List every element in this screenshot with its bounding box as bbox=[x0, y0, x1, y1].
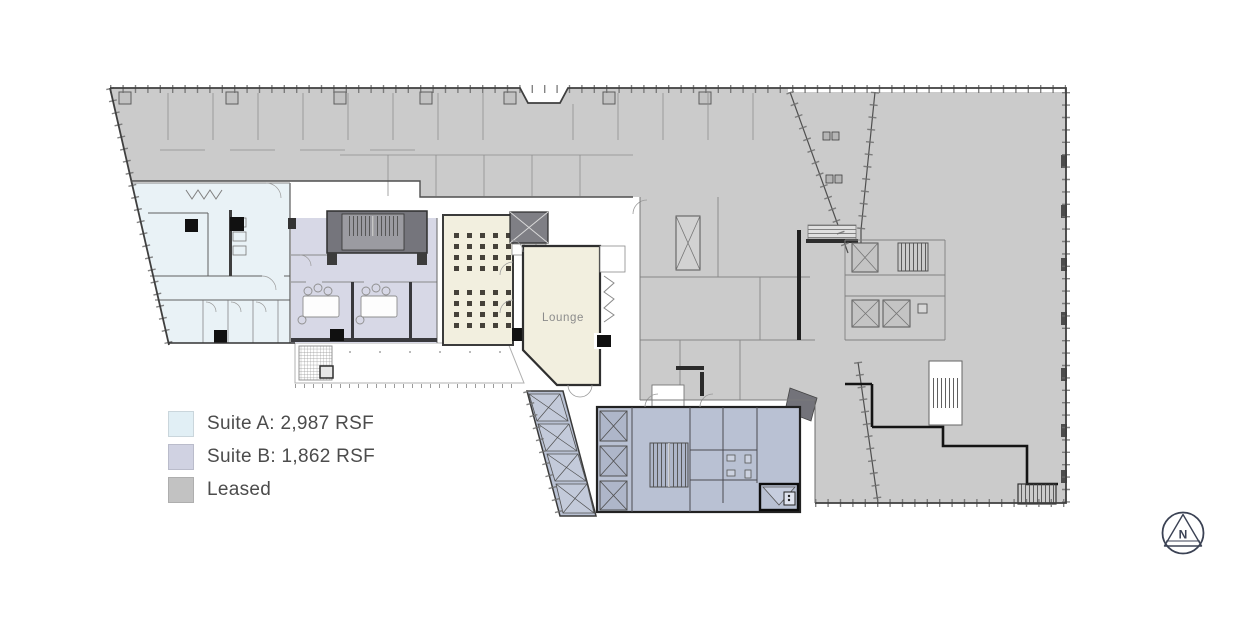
core-zone bbox=[527, 385, 817, 516]
legend: Suite A: 2,987 RSF Suite B: 1,862 RSF Le… bbox=[168, 411, 375, 503]
north-label: N bbox=[1179, 528, 1188, 542]
accordion-glass-wall bbox=[604, 276, 614, 322]
suite-b-zone bbox=[288, 211, 437, 343]
legend-item-leased: Leased bbox=[168, 477, 375, 503]
floor-plan-page: Lounge bbox=[0, 0, 1260, 620]
core-stair bbox=[650, 443, 688, 487]
legend-item-suite-b: Suite B: 1,862 RSF bbox=[168, 444, 375, 470]
core-elevators bbox=[600, 411, 627, 510]
lounge-label: Lounge bbox=[542, 312, 584, 324]
legend-label-suite-b: Suite B: 1,862 RSF bbox=[207, 446, 375, 468]
legend-label-leased: Leased bbox=[207, 479, 271, 501]
north-indicator: N bbox=[1163, 513, 1204, 554]
suite-a-zone bbox=[131, 183, 290, 343]
legend-item-suite-a: Suite A: 2,987 RSF bbox=[168, 411, 375, 437]
legend-swatch-leased bbox=[168, 477, 194, 503]
legend-label-suite-a: Suite A: 2,987 RSF bbox=[207, 413, 374, 435]
column-suite-b bbox=[330, 329, 344, 341]
core-kitchen bbox=[760, 484, 798, 510]
legend-swatch-suite-b bbox=[168, 444, 194, 470]
legend-swatch-suite-a bbox=[168, 411, 194, 437]
terrace bbox=[295, 343, 524, 383]
column-lounge bbox=[597, 335, 611, 347]
lounge-zone: Lounge bbox=[511, 240, 625, 397]
floor-plan: Lounge bbox=[0, 0, 1260, 620]
elevator-bank bbox=[527, 391, 596, 516]
